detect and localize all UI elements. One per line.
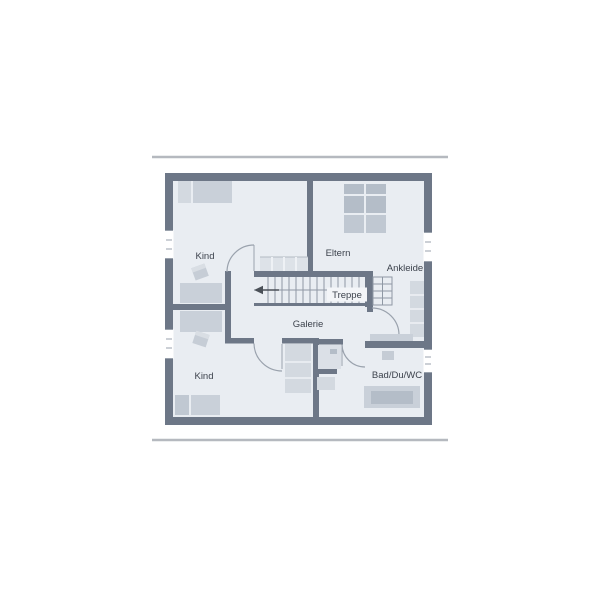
room-label-galerie: Galerie [293, 319, 324, 330]
bathtub [364, 386, 420, 408]
bed-mattress [366, 215, 386, 233]
wall-kind-divider [173, 304, 225, 310]
wardrobe [410, 281, 424, 337]
wall-left [165, 173, 173, 425]
bed-mattress [344, 215, 364, 233]
bed-mattress [193, 181, 232, 203]
room-label-kind-bottom: Kind [194, 371, 213, 382]
wall-right [424, 173, 432, 425]
bed-mattress [344, 196, 364, 213]
wall-bad-top-east [365, 341, 424, 348]
room-label-kind-top: Kind [195, 251, 214, 262]
window-bad [424, 349, 433, 373]
bed-pillow [178, 181, 191, 203]
window-glass [424, 349, 433, 373]
wall-bad-stub [313, 369, 337, 374]
sideboard [370, 334, 413, 341]
floor-plan-page: Treppe [0, 0, 600, 600]
window-kind-bottom [165, 329, 174, 359]
window-glass [424, 232, 433, 262]
wall-galerie-west [225, 271, 231, 343]
toilet [317, 377, 335, 390]
wall-galerie-south-west [225, 338, 254, 344]
room-label-eltern: Eltern [326, 248, 351, 259]
wall-stair-top [254, 271, 371, 277]
window-ankleide [424, 232, 433, 262]
window-glass [165, 329, 174, 359]
bed-mattress [191, 395, 220, 415]
wall-bad-top-west [318, 339, 343, 345]
window-glass [165, 230, 174, 259]
wall-top [165, 173, 432, 181]
shower [318, 345, 341, 369]
room-label-ankleide: Ankleide [387, 263, 423, 274]
bed-mattress [366, 196, 386, 213]
desk [180, 311, 222, 332]
sink [382, 351, 394, 360]
stair-bottom-rail [254, 303, 371, 306]
wardrobe [285, 344, 311, 393]
window-kind-top [165, 230, 174, 259]
wall-bottom [165, 417, 432, 425]
bed-headboard [344, 184, 364, 194]
wall-galerie-south-mid [282, 338, 318, 344]
desk [180, 283, 222, 303]
floor-plan-drawing: Treppe [0, 0, 600, 600]
room-label-bad: Bad/Du/WC [372, 370, 422, 381]
room-label-treppe: Treppe [332, 290, 362, 301]
bed-headboard [366, 184, 386, 194]
bed-pillow [175, 395, 189, 415]
